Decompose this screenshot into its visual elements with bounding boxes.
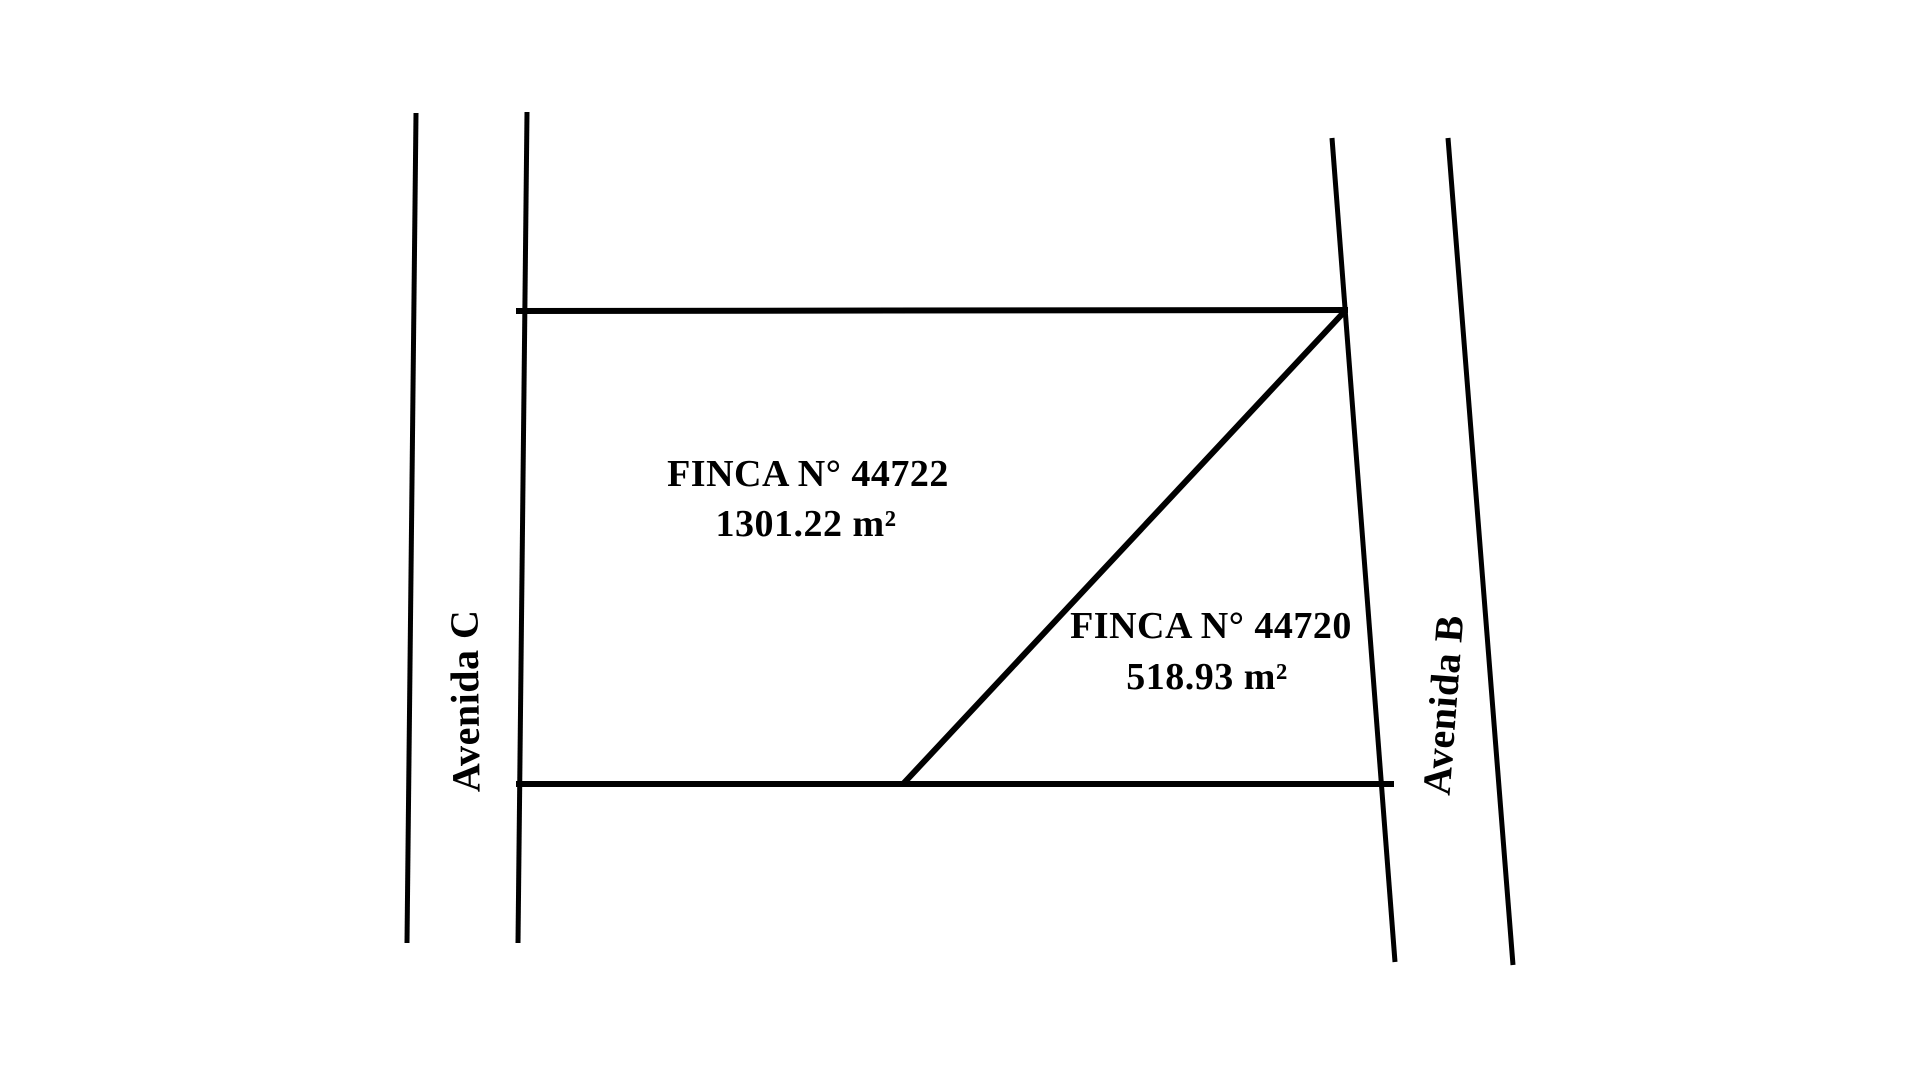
parcel-1-area-value: 1301.22 m² <box>715 502 896 546</box>
plot-sketch-canvas: FINCA N° 44722 1301.22 m² FINCA N° 44720… <box>0 0 1920 1080</box>
avenida-c-east-edge-line <box>518 112 527 943</box>
parcel-division-diagonal-line <box>903 311 1345 784</box>
avenida-b-east-edge-line <box>1448 138 1513 965</box>
parcel-north-boundary-line <box>516 310 1348 311</box>
street-label-avenida-c: Avenida C <box>440 609 489 792</box>
parcel-2-area-value: 518.93 m² <box>1126 655 1288 699</box>
avenida-c-west-edge-line <box>407 113 416 943</box>
avenida-b-west-edge-line <box>1332 138 1395 962</box>
parcel-1-title: FINCA N° 44722 <box>667 452 949 496</box>
parcel-2-title: FINCA N° 44720 <box>1070 604 1352 648</box>
plot-sketch-lines <box>0 0 1920 1080</box>
